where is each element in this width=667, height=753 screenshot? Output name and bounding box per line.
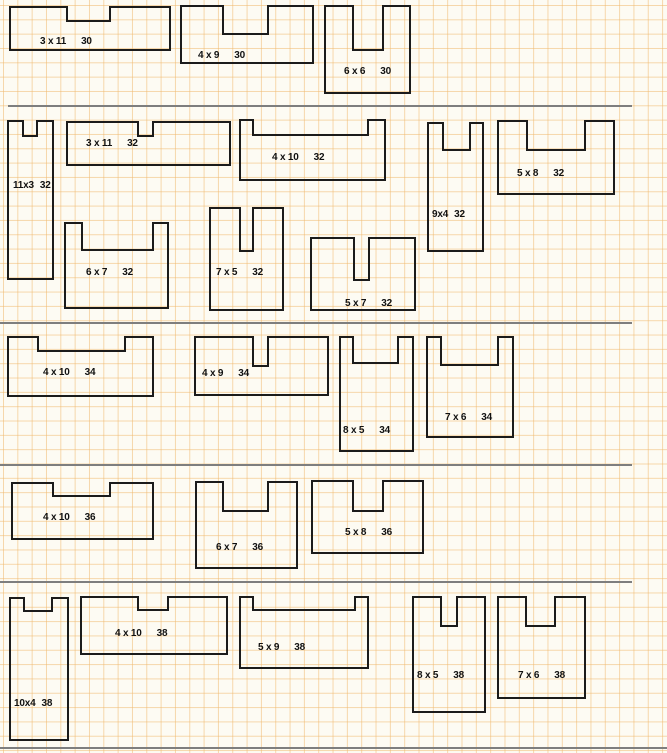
shape-label-3x11-p32: 3 x 1132 [86, 138, 138, 149]
shape-perimeter: 32 [252, 267, 263, 278]
shape-dims: 7 x 6 [445, 412, 466, 423]
shape-label-4x10-p36: 4 x 1036 [43, 512, 95, 523]
shape-label-5x9-p38: 5 x 938 [258, 642, 305, 653]
shape-dims: 5 x 9 [258, 642, 279, 653]
shape-label-5x7-p32: 5 x 732 [345, 298, 392, 309]
shape-dims: 10x4 [14, 698, 35, 709]
shape-label-3x11-p30: 3 x 1130 [40, 36, 92, 47]
shapes-layer [0, 0, 667, 753]
shape-dims: 3 x 11 [40, 36, 66, 47]
shape-perimeter: 32 [454, 209, 465, 220]
shape-label-10x4-p38: 10x438 [14, 698, 52, 709]
shape-perimeter: 38 [453, 670, 464, 681]
shape-perimeter: 32 [122, 267, 133, 278]
shape-perimeter: 36 [252, 542, 263, 553]
shape-dims: 5 x 7 [345, 298, 366, 309]
shape-dims: 7 x 5 [216, 267, 237, 278]
shape-perimeter: 34 [238, 368, 249, 379]
shape-perimeter: 32 [314, 152, 325, 163]
shape-dims: 9x4 [432, 209, 448, 220]
shape-outline-11x3-p32 [8, 121, 53, 279]
shape-perimeter: 30 [81, 36, 92, 47]
shape-perimeter: 36 [381, 527, 392, 538]
shape-label-5x8-p32: 5 x 832 [517, 168, 564, 179]
shape-dims: 4 x 10 [43, 512, 70, 523]
shape-outline-10x4-p38 [10, 598, 68, 740]
shape-outline-7x5-p32 [210, 208, 283, 310]
shape-dims: 8 x 5 [417, 670, 438, 681]
shape-perimeter: 32 [40, 180, 51, 191]
shape-outline-9x4-p32 [428, 123, 483, 251]
shape-dims: 3 x 11 [86, 138, 112, 149]
shape-dims: 4 x 10 [115, 628, 142, 639]
shape-outline-4x10-p38 [81, 597, 227, 654]
shape-perimeter: 34 [379, 425, 390, 436]
shape-label-7x6-p38: 7 x 638 [518, 670, 565, 681]
shape-dims: 4 x 10 [272, 152, 299, 163]
shape-label-11x3-p32: 11x332 [13, 180, 51, 191]
shape-perimeter: 32 [553, 168, 564, 179]
shape-perimeter: 38 [294, 642, 305, 653]
shape-outline-5x8-p36 [312, 481, 423, 553]
shape-outline-5x8-p32 [498, 121, 614, 194]
shape-outline-6x7-p36 [196, 482, 297, 568]
shape-perimeter: 32 [127, 138, 138, 149]
shape-label-6x6-p30: 6 x 630 [344, 66, 391, 77]
shape-outline-4x9-p34 [195, 337, 328, 395]
shape-outline-4x10-p32 [240, 120, 385, 180]
shape-perimeter: 38 [554, 670, 565, 681]
shape-label-5x8-p36: 5 x 836 [345, 527, 392, 538]
shape-perimeter: 38 [157, 628, 168, 639]
shape-dims: 5 x 8 [345, 527, 366, 538]
shape-label-6x7-p32: 6 x 732 [86, 267, 133, 278]
shape-perimeter: 34 [481, 412, 492, 423]
shape-outline-6x7-p32 [65, 223, 168, 308]
shape-dims: 4 x 9 [202, 368, 223, 379]
shape-dims: 8 x 5 [343, 425, 364, 436]
shape-label-7x6-p34: 7 x 634 [445, 412, 492, 423]
shape-dims: 11x3 [13, 180, 34, 191]
shape-perimeter: 30 [380, 66, 391, 77]
shape-outline-8x5-p38 [413, 597, 485, 712]
shape-label-9x4-p32: 9x432 [432, 209, 465, 220]
shape-perimeter: 38 [41, 698, 52, 709]
shape-outline-7x6-p38 [498, 597, 585, 698]
shape-dims: 6 x 7 [216, 542, 237, 553]
shape-dims: 6 x 7 [86, 267, 107, 278]
shape-outline-6x6-p30 [325, 6, 410, 93]
shape-label-8x5-p38: 8 x 538 [417, 670, 464, 681]
shape-dims: 4 x 10 [43, 367, 70, 378]
shape-perimeter: 34 [85, 367, 96, 378]
shape-label-4x10-p32: 4 x 1032 [272, 152, 324, 163]
shape-perimeter: 36 [85, 512, 96, 523]
shape-label-4x9-p30: 4 x 930 [198, 50, 245, 61]
shape-label-4x9-p34: 4 x 934 [202, 368, 249, 379]
graph-paper: 3 x 11304 x 9306 x 63011x3323 x 11324 x … [0, 0, 667, 753]
shape-outline-5x9-p38 [240, 597, 368, 668]
shape-label-4x10-p38: 4 x 1038 [115, 628, 167, 639]
shape-label-6x7-p36: 6 x 736 [216, 542, 263, 553]
shape-perimeter: 30 [234, 50, 245, 61]
shape-dims: 7 x 6 [518, 670, 539, 681]
shape-dims: 5 x 8 [517, 168, 538, 179]
shape-dims: 6 x 6 [344, 66, 365, 77]
shape-perimeter: 32 [381, 298, 392, 309]
shape-outline-4x10-p36 [12, 483, 153, 539]
shape-label-4x10-p34: 4 x 1034 [43, 367, 95, 378]
shape-label-8x5-p34: 8 x 534 [343, 425, 390, 436]
shape-dims: 4 x 9 [198, 50, 219, 61]
shape-label-7x5-p32: 7 x 532 [216, 267, 263, 278]
